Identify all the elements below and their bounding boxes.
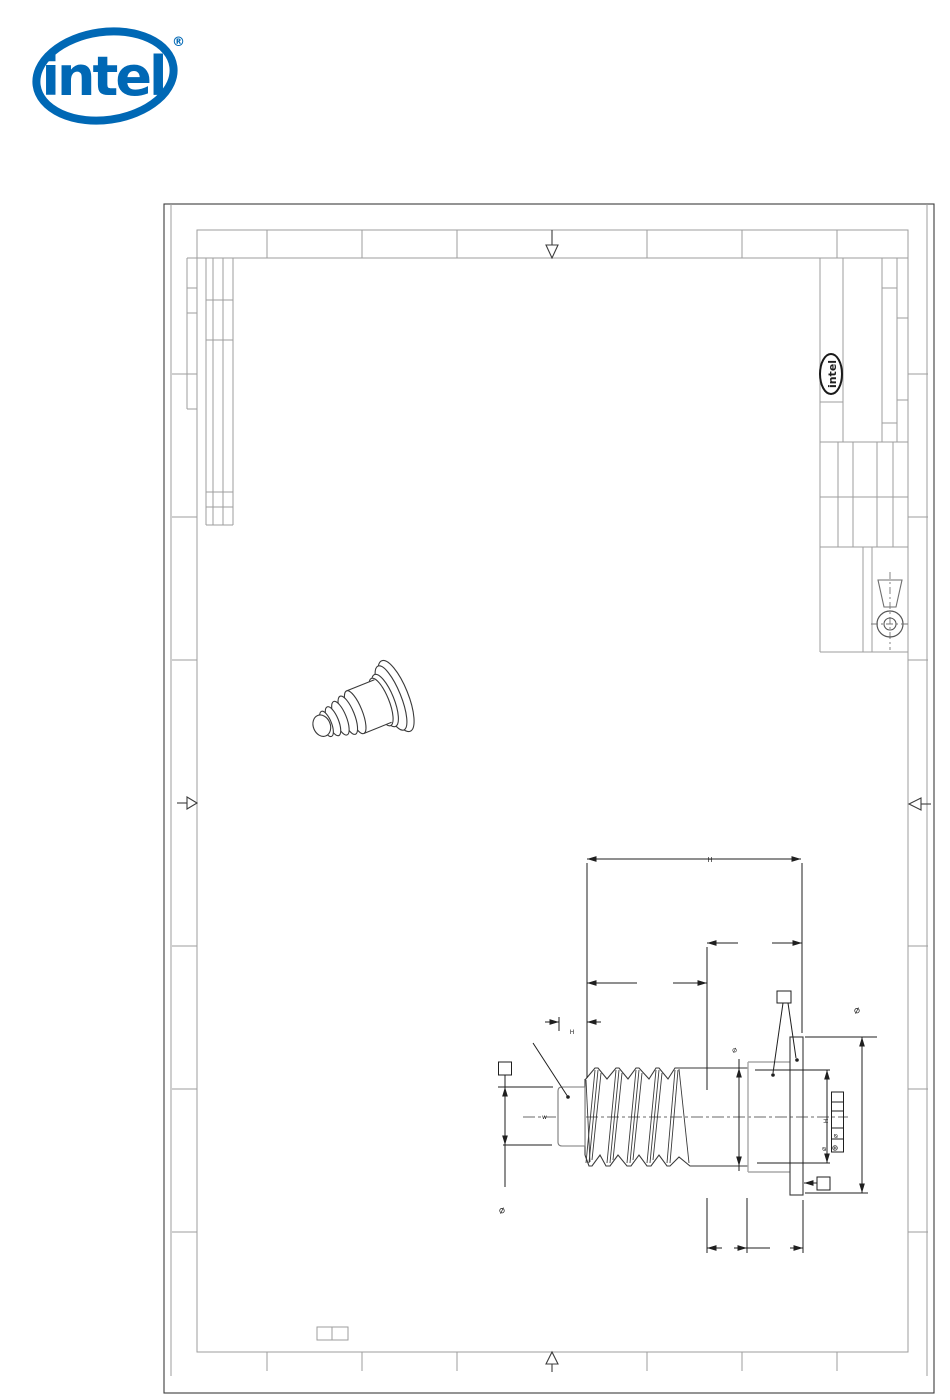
dim-tip-diameter: ⌀ <box>497 1062 511 1217</box>
leader-thread <box>533 1043 570 1099</box>
dim-head-diameter-symbol: ⌀ <box>820 1147 828 1151</box>
dim-flange-diameter: ⌀ <box>852 1004 862 1193</box>
pilot-tip <box>558 1087 585 1146</box>
datum-feature-right <box>804 1177 830 1190</box>
thread-profile-bottom <box>585 1155 748 1166</box>
projection-symbol <box>871 572 909 650</box>
dim-tip-length-value: H <box>570 1029 575 1036</box>
dim-overall-length-value: H <box>707 856 712 864</box>
thread-flank-lines <box>586 1069 689 1163</box>
datum-feature-square-flange <box>817 1177 830 1190</box>
dim-tip-length: H <box>545 1022 601 1036</box>
registered-mark: ® <box>172 35 185 50</box>
datum-feature-square-tip <box>499 1062 512 1075</box>
dim-overall-length: H <box>587 856 801 864</box>
dim-tip-diameter-symbol: ⌀ <box>497 1204 506 1216</box>
intel-logo: intel ® <box>31 23 185 129</box>
fcf-diameter-symbol: ⌀ <box>832 1134 840 1138</box>
centering-mark-top <box>546 230 558 258</box>
drawing-page: intel ® <box>0 0 950 1400</box>
intel-logo-text: intel <box>42 45 165 108</box>
dim-flange-diameter-symbol: ⌀ <box>852 1004 861 1016</box>
dimensions: H H ⌀ <box>497 856 877 1253</box>
dim-head-diameter-value: H <box>823 1119 830 1124</box>
thread-profile-top <box>585 1068 748 1080</box>
feature-control-frame: ⌀ ⊕ <box>831 1092 844 1152</box>
dim-shank-diameter-symbol: ⌀ <box>731 1045 739 1055</box>
centering-mark-right <box>909 798 931 810</box>
datum-target-square <box>777 991 791 1003</box>
fcf-position-symbol: ⊕ <box>831 1145 840 1152</box>
isometric-view <box>310 656 422 739</box>
datum-target-top <box>771 991 799 1077</box>
dim-head-diameter: H ⌀ ⌀ ⊕ <box>820 1070 844 1163</box>
sheet-outer-border <box>164 204 934 1393</box>
dim-shank-diameter: ⌀ <box>731 1045 739 1171</box>
side-view <box>523 1037 848 1195</box>
sheet-reference-boxes <box>317 1327 348 1340</box>
extension-lines <box>498 863 877 1253</box>
centering-mark-left <box>177 797 197 809</box>
title-block-logo-text: intel <box>826 360 839 388</box>
title-block: intel <box>820 258 909 652</box>
centerline-note: w <box>542 1114 547 1121</box>
sheet-frame <box>164 204 934 1393</box>
centering-mark-bottom <box>546 1352 558 1372</box>
revision-table <box>187 258 233 525</box>
title-block-intel-logo: intel <box>820 354 842 394</box>
inner-frame <box>197 230 908 1352</box>
engineering-drawing: intel ® <box>0 0 950 1400</box>
